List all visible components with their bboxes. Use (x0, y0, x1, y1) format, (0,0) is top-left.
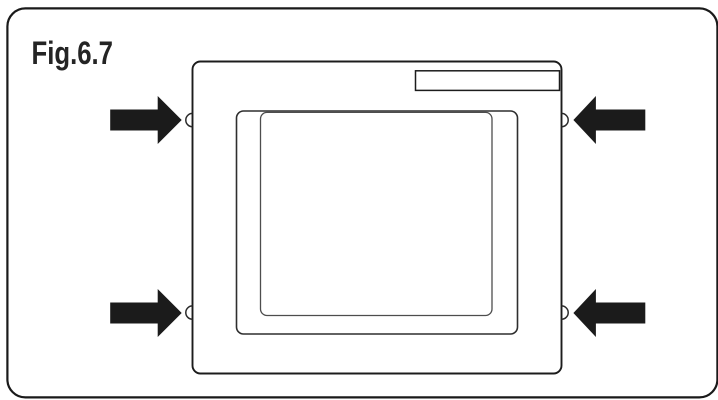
svg-text:Fig.6.7: Fig.6.7 (32, 35, 114, 71)
